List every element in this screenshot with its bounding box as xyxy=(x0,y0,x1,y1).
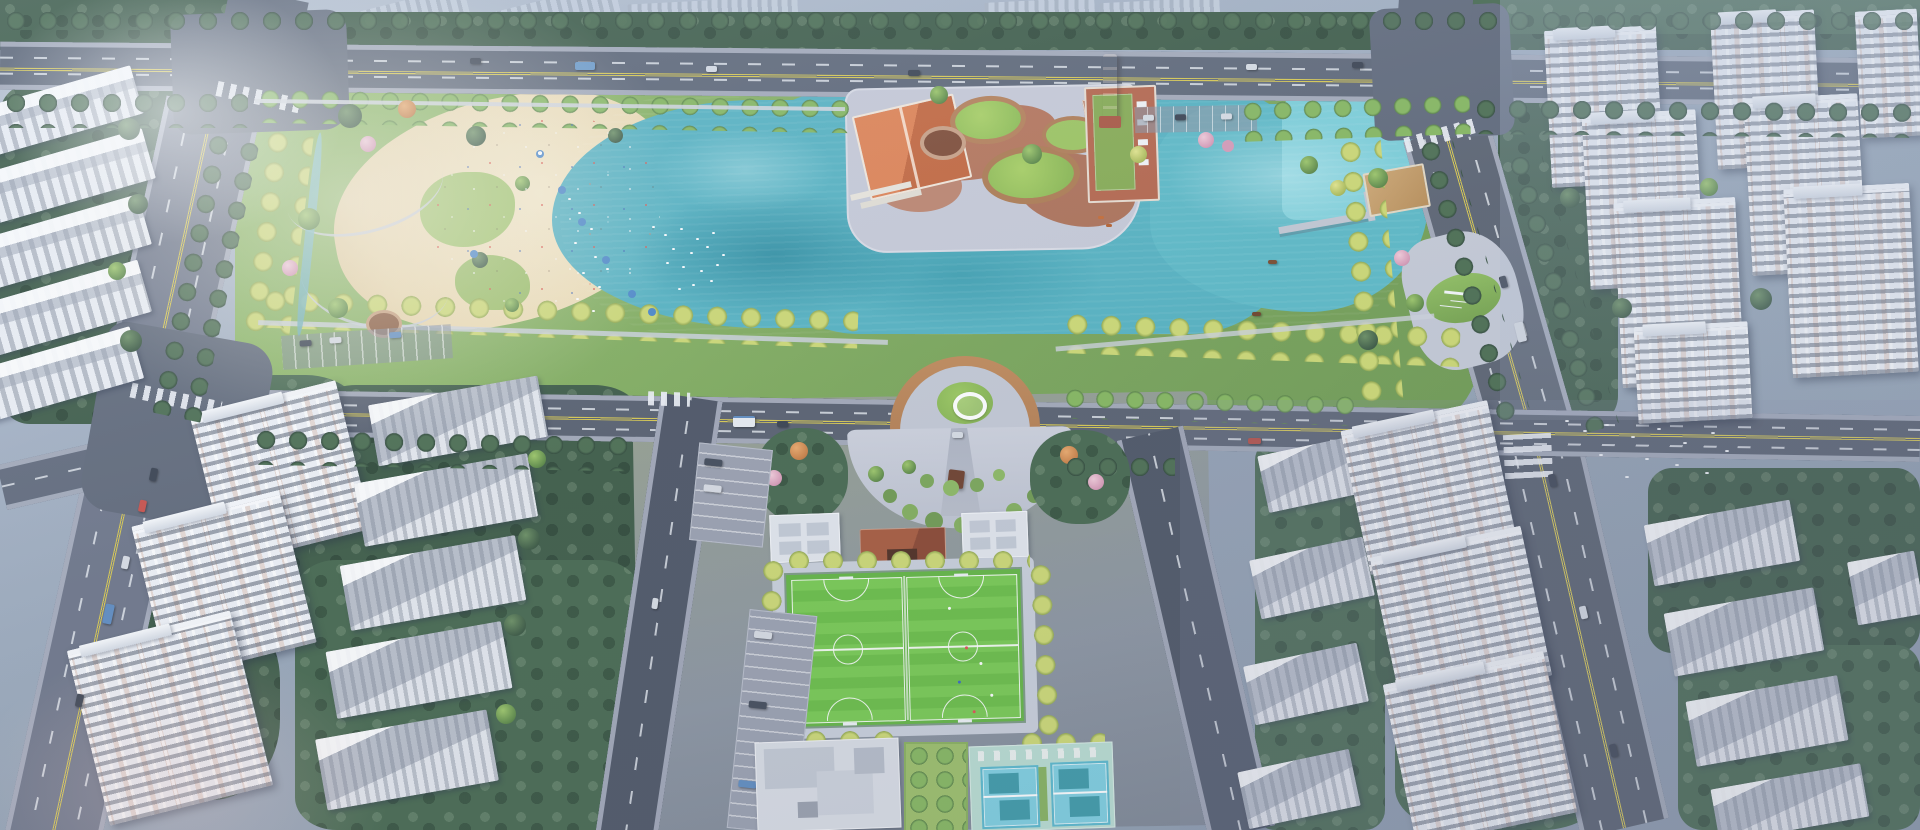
aerial-rendering-stage xyxy=(0,0,1920,830)
blossom-tree xyxy=(360,136,376,152)
tree xyxy=(298,208,320,230)
tree-bosque xyxy=(904,742,968,830)
tree xyxy=(1700,178,1718,196)
football-pitches xyxy=(786,569,1024,727)
clubhouse-building xyxy=(754,738,901,830)
lane-marking xyxy=(1555,433,1647,823)
goal xyxy=(839,576,853,579)
parked-car xyxy=(754,631,773,640)
court-inner xyxy=(999,799,1030,820)
tree xyxy=(118,118,140,140)
brick-chimney xyxy=(1103,54,1117,122)
car xyxy=(952,432,963,438)
roof-cap xyxy=(1623,197,1691,212)
car xyxy=(706,66,717,72)
parked-car xyxy=(1221,113,1232,119)
roof-ridge xyxy=(899,107,920,188)
swan-flock xyxy=(568,198,571,200)
beach-umbrella xyxy=(536,150,544,158)
tree-row xyxy=(1060,452,1175,488)
amphitheater-circle xyxy=(920,126,966,160)
parked-car xyxy=(704,458,723,467)
tree-row xyxy=(1470,94,1920,138)
autumn-tree xyxy=(398,100,416,118)
tree xyxy=(930,86,948,104)
car xyxy=(470,58,481,64)
penalty-arc xyxy=(826,697,873,721)
sun-loungers xyxy=(978,747,1104,761)
parked-car xyxy=(738,780,757,789)
parked-car xyxy=(1175,114,1186,120)
chimney-base xyxy=(1099,116,1121,128)
car xyxy=(1352,62,1363,68)
tree-row xyxy=(0,6,1920,42)
penalty-arc xyxy=(941,694,988,718)
penalty-arc xyxy=(938,575,985,599)
plaza-tree xyxy=(868,466,884,482)
tree-row xyxy=(250,425,631,472)
car xyxy=(777,421,788,427)
blossom-tree xyxy=(1394,250,1410,266)
truck xyxy=(1248,438,1261,444)
autumn-tree xyxy=(790,442,808,460)
blossom-tree xyxy=(282,260,298,276)
roof-cap xyxy=(1643,321,1706,336)
residential-tower xyxy=(1383,651,1578,830)
tree xyxy=(528,450,546,468)
roof-cap xyxy=(1793,183,1863,199)
parked-car xyxy=(748,700,767,709)
court-inner xyxy=(1069,796,1100,817)
tree xyxy=(338,104,362,128)
plaza-tree xyxy=(902,460,916,474)
skylight xyxy=(778,523,800,537)
tree xyxy=(496,704,516,724)
parked-car xyxy=(389,332,401,339)
tree xyxy=(328,298,348,318)
tennis-area xyxy=(969,742,1116,830)
tree xyxy=(1368,168,1388,188)
players xyxy=(948,607,951,610)
tree xyxy=(1560,188,1580,208)
parked-car xyxy=(329,337,341,344)
tree xyxy=(504,614,526,636)
court-inner xyxy=(989,773,1020,794)
tree xyxy=(128,194,148,214)
roof-unit xyxy=(798,801,819,818)
goal xyxy=(954,573,968,576)
tree xyxy=(108,262,126,280)
tree xyxy=(1358,330,1378,350)
parked-car xyxy=(299,340,311,347)
blossom-tree xyxy=(1198,132,1214,148)
football-pitch xyxy=(906,574,1021,721)
net-line xyxy=(1053,791,1107,795)
tree xyxy=(120,330,142,352)
tree xyxy=(1750,288,1772,310)
skylight xyxy=(969,520,989,533)
tennis-court xyxy=(1050,761,1110,827)
tree-row xyxy=(782,546,1030,568)
net-line xyxy=(983,794,1037,798)
parking-strip xyxy=(689,442,773,547)
crosswalk xyxy=(1503,433,1553,479)
residential-tower xyxy=(1634,321,1753,424)
parked-car xyxy=(1143,115,1154,121)
bus xyxy=(575,62,595,70)
bird-flock-flying xyxy=(1565,420,1569,422)
tree xyxy=(1022,144,1042,164)
bus xyxy=(733,416,755,427)
tree xyxy=(1612,298,1632,318)
monument xyxy=(947,469,965,489)
roof-block xyxy=(817,769,875,815)
planter-strip xyxy=(1038,767,1048,821)
residential-slab xyxy=(1847,551,1920,626)
rowboat xyxy=(1268,260,1277,264)
tree xyxy=(1330,180,1346,196)
car xyxy=(908,70,920,76)
tree xyxy=(1130,146,1147,163)
tree xyxy=(518,528,540,550)
swimmers-speckle xyxy=(560,160,660,310)
roof-block xyxy=(854,747,885,774)
car xyxy=(1246,64,1257,70)
tennis-court xyxy=(980,765,1040,829)
tree xyxy=(1300,156,1318,174)
court-inner xyxy=(1058,768,1089,789)
center-circle xyxy=(948,631,979,662)
penalty-arc xyxy=(823,578,870,602)
bird-flock-on-water xyxy=(652,226,655,228)
residential-tower xyxy=(1783,183,1919,378)
tree xyxy=(1406,294,1424,312)
parked-car xyxy=(703,484,722,493)
industrial-hall xyxy=(1084,85,1160,203)
center-circle xyxy=(833,634,864,665)
kayak xyxy=(1098,216,1104,219)
